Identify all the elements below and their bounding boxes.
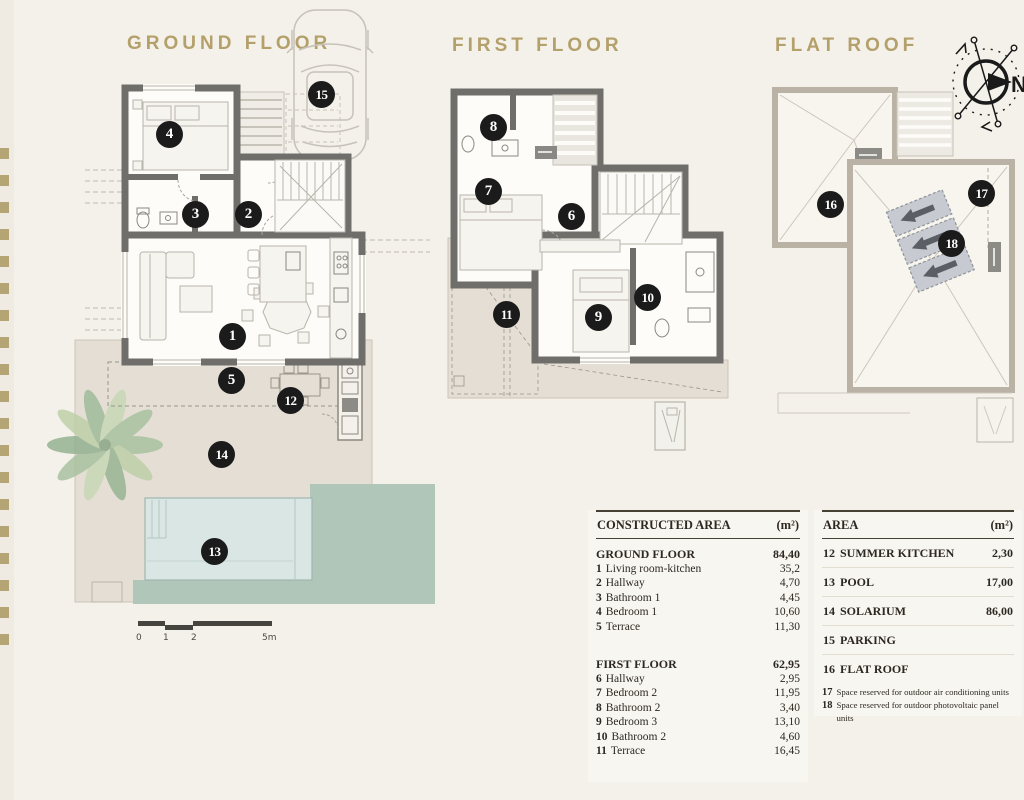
table-row: 13POOL 17,00 <box>822 568 1014 597</box>
first-floor-title: FIRST FLOOR <box>452 35 623 57</box>
compass-north-label: N <box>1011 72 1024 97</box>
table-row: 9Bedroom 3 13,10 <box>596 715 800 730</box>
table-row: 6Hallway 2,95 <box>596 672 800 687</box>
table-row: 14SOLARIUM 86,00 <box>822 597 1014 626</box>
table-row: 15PARKING <box>822 626 1014 655</box>
stairs <box>275 160 345 232</box>
marker-parking: 15 <box>308 81 335 108</box>
compass-rose-icon: N <box>948 34 1024 134</box>
area-table: AREA (m²) 12SUMMER KITCHEN 2,30 13POOL 1… <box>814 510 1022 716</box>
area-unit: (m²) <box>991 518 1014 533</box>
table-row: 5Terrace 11,30 <box>596 620 800 635</box>
marker-solarium: 14 <box>208 441 235 468</box>
marker-living-room-kitchen: 1 <box>219 323 246 350</box>
area-title: AREA <box>823 518 858 533</box>
marker-bathroom-2: 8 <box>480 114 507 141</box>
marker-pool: 13 <box>201 538 228 565</box>
scale-label-2: 2 <box>191 633 197 643</box>
marker-bedroom-1: 4 <box>156 121 183 148</box>
table-row: 7Bedroom 2 11,95 <box>596 686 800 701</box>
scale-label-5m: 5m <box>262 633 277 643</box>
pool <box>145 498 312 580</box>
table-row: 3Bathroom 1 4,45 <box>596 591 800 606</box>
first-floor-stairs <box>600 172 682 244</box>
group-total-row: GROUND FLOOR 84,40 <box>596 547 800 562</box>
group-total-row: FIRST FLOOR 62,95 <box>596 657 800 672</box>
garden-corner-pad <box>92 582 122 602</box>
area-notes: 17 Space reserved for outdoor air condit… <box>822 686 1014 725</box>
first-floor-group: FIRST FLOOR 62,95 6Hallway 2,95 7Bedroom… <box>596 657 800 759</box>
marker-bedroom-2: 7 <box>475 178 502 205</box>
architectural-plan-sheet: GROUND FLOOR FIRST FLOOR FLAT ROOF <box>0 0 1024 800</box>
area-header: AREA (m²) <box>822 510 1014 539</box>
first-floor-plan <box>440 80 730 480</box>
constructed-area-unit: (m²) <box>777 518 800 533</box>
bedroom2-furniture <box>460 195 542 270</box>
constructed-area-header: CONSTRUCTED AREA (m²) <box>596 510 800 539</box>
flat-roof-plan <box>760 80 1024 460</box>
first-floor-window <box>580 356 630 364</box>
table-row: 12SUMMER KITCHEN 2,30 <box>822 539 1014 568</box>
marker-summer-kitchen: 12 <box>277 387 304 414</box>
note-row: 17 Space reserved for outdoor air condit… <box>822 686 1014 699</box>
marker-terrace-ff: 11 <box>493 301 520 328</box>
table-row: 4Bedroom 1 10,60 <box>596 605 800 620</box>
constructed-area-table: CONSTRUCTED AREA (m²) GROUND FLOOR 84,40… <box>588 510 808 782</box>
scale-label-1: 1 <box>163 633 169 643</box>
constructed-area-title: CONSTRUCTED AREA <box>597 518 731 533</box>
roof-lower-outline <box>778 393 1013 442</box>
marker-hallway-ff: 6 <box>558 203 585 230</box>
left-edge-cropped-text <box>0 148 9 648</box>
roof-slat-strip <box>897 92 953 156</box>
scale-label-0: 0 <box>136 633 142 643</box>
roof-appendix <box>655 402 685 450</box>
marker-bathroom-2b: 10 <box>634 284 661 311</box>
marker-hallway-gf: 2 <box>235 201 262 228</box>
table-row: 11Terrace 16,45 <box>596 744 800 759</box>
flat-roof-title: FLAT ROOF <box>775 35 918 57</box>
ground-floor-group: GROUND FLOOR 84,40 1Living room-kitchen … <box>596 547 800 634</box>
pergola-slats <box>553 95 597 165</box>
marker-terrace-gf: 5 <box>218 367 245 394</box>
table-row: 1Living room-kitchen 35,2 <box>596 562 800 577</box>
marker-flat-roof: 16 <box>817 191 844 218</box>
table-row: 8Bathroom 2 3,40 <box>596 701 800 716</box>
marker-bathroom-1: 3 <box>182 201 209 228</box>
table-row: 10Bathroom 2 4,60 <box>596 730 800 745</box>
table-row: 2Hallway 4,70 <box>596 576 800 591</box>
table-row: 16FLAT ROOF <box>822 655 1014 683</box>
marker-ac-space: 17 <box>968 180 995 207</box>
marker-bedroom-3: 9 <box>585 304 612 331</box>
scale-bar: 0 1 2 5m <box>138 621 278 647</box>
note-row: 18 Space reserved for outdoor photovolta… <box>822 699 1014 725</box>
marker-pv-space: 18 <box>938 230 965 257</box>
